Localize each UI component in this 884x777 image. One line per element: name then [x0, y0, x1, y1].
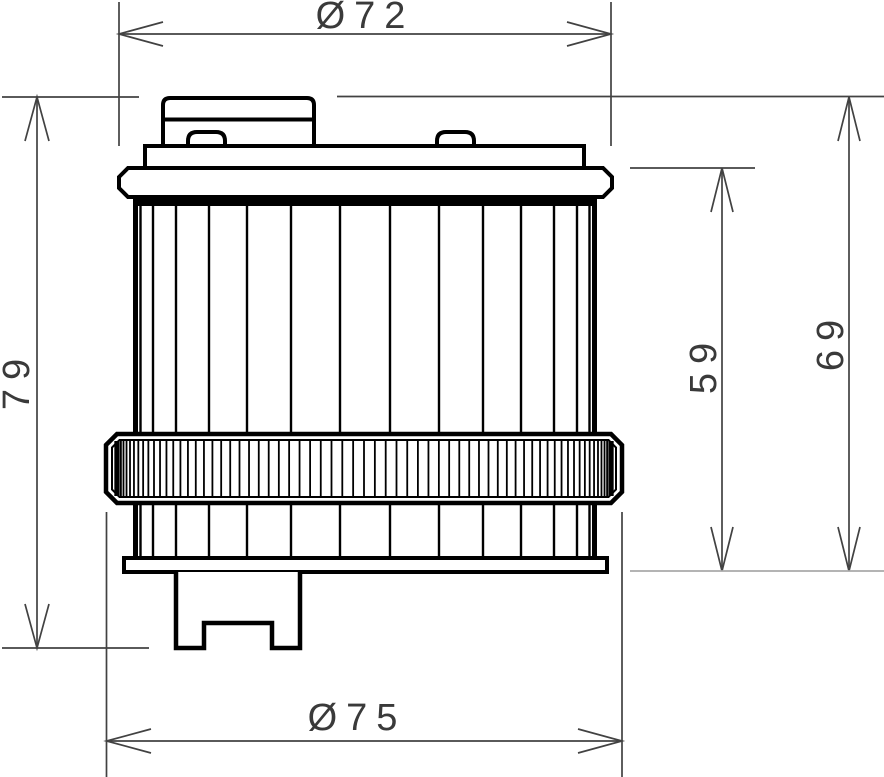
nub-left	[188, 132, 225, 146]
nub-right	[437, 132, 474, 146]
bottom-bracket	[176, 572, 300, 648]
dim-right-inner-height-label: 59	[683, 334, 725, 394]
dim-right-outer-height-label: 69	[810, 311, 852, 371]
drawing-canvas: Ø72 79 59 69 Ø75	[0, 0, 884, 777]
top-flange	[119, 168, 612, 197]
filter-cap	[163, 98, 314, 146]
dim-left-height-label: 79	[0, 350, 38, 410]
mounting-plate	[145, 146, 584, 168]
bottom-plate	[124, 558, 607, 572]
filter-body-group	[106, 98, 622, 648]
dim-bottom-diameter-label: Ø75	[308, 697, 407, 739]
pleat-lines	[141, 205, 590, 559]
dim-top-diameter-label: Ø72	[316, 0, 415, 37]
technical-drawing: Ø72 79 59 69 Ø75	[0, 0, 884, 777]
top-end-disc	[133, 197, 597, 206]
